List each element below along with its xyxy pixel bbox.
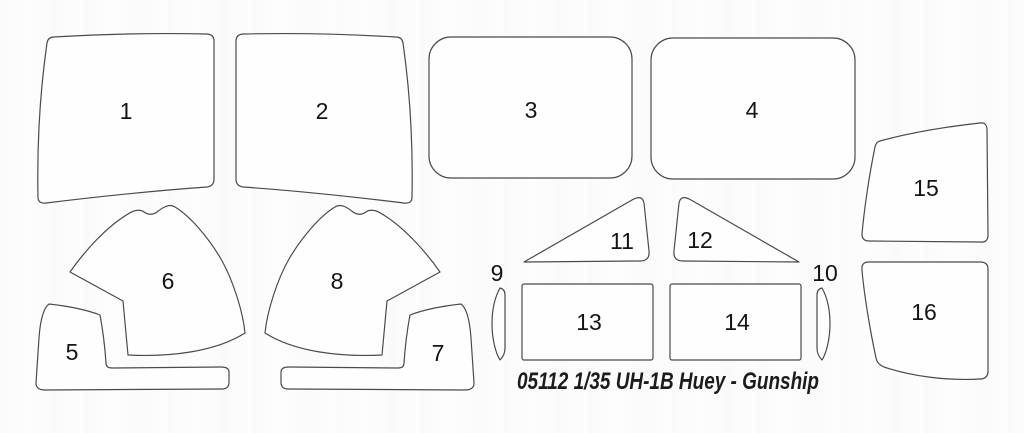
part-16-label: 16 bbox=[911, 299, 937, 325]
part-6-label: 6 bbox=[162, 268, 175, 294]
part-14-label: 14 bbox=[724, 309, 750, 335]
part-13-label: 13 bbox=[576, 309, 602, 335]
part-1-label: 1 bbox=[120, 98, 133, 124]
part-7-label: 7 bbox=[432, 340, 445, 366]
part-3-label: 3 bbox=[525, 97, 538, 123]
part-5-label: 5 bbox=[66, 339, 79, 365]
part-10-outline bbox=[817, 288, 830, 360]
part-outlines bbox=[36, 34, 988, 390]
part-10-label: 10 bbox=[812, 260, 838, 286]
part-9 bbox=[492, 288, 505, 360]
part-9-outline bbox=[492, 288, 505, 360]
parts-diagram: 1 2 3 4 5 6 7 8 9 10 11 12 13 14 15 16 0… bbox=[0, 0, 1024, 433]
part-12-label: 12 bbox=[687, 227, 713, 253]
part-8-label: 8 bbox=[331, 268, 344, 294]
part-11-label: 11 bbox=[610, 228, 634, 254]
part-9-label: 9 bbox=[491, 260, 504, 286]
parts-diagram-canvas: 1 2 3 4 5 6 7 8 9 10 11 12 13 14 15 16 0… bbox=[0, 0, 1024, 433]
part-10 bbox=[817, 288, 830, 360]
part-4-label: 4 bbox=[746, 97, 759, 123]
part-15-label: 15 bbox=[913, 175, 939, 201]
kit-title-text: 05112 1/35 UH-1B Huey - Gunship bbox=[517, 368, 819, 395]
part-2-label: 2 bbox=[316, 98, 329, 124]
